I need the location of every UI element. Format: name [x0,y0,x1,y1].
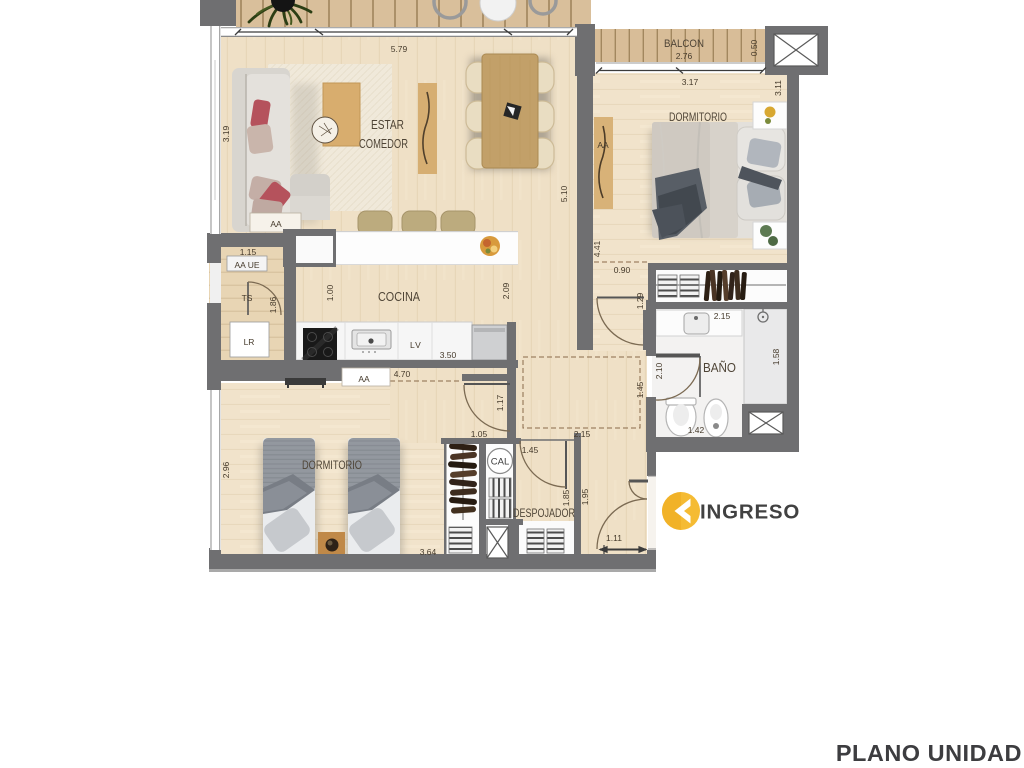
svg-text:1.95: 1.95 [580,488,590,505]
svg-text:1.17: 1.17 [495,394,505,411]
svg-text:1.42: 1.42 [688,425,705,435]
svg-text:1.85: 1.85 [561,489,571,506]
svg-text:5.79: 5.79 [391,44,408,54]
svg-text:2.10: 2.10 [654,362,664,379]
svg-text:1.00: 1.00 [325,284,335,301]
svg-text:2.15: 2.15 [574,429,591,439]
svg-text:AA: AA [358,374,370,384]
svg-text:3.50: 3.50 [440,350,457,360]
svg-text:3.11: 3.11 [773,80,783,96]
svg-text:BALCON: BALCON [664,38,704,50]
svg-text:BAÑO: BAÑO [703,361,736,375]
svg-text:1.11: 1.11 [606,533,622,543]
svg-text:AA: AA [270,219,282,229]
svg-text:1.15: 1.15 [240,247,257,257]
svg-text:DORMITORIO: DORMITORIO [302,458,362,472]
svg-text:PLANO UNIDAD: PLANO UNIDAD [836,740,1022,766]
svg-text:4.70: 4.70 [394,369,411,379]
svg-text:2.15: 2.15 [714,311,731,321]
svg-text:5.10: 5.10 [559,185,569,202]
svg-text:LR: LR [244,337,255,347]
svg-text:2.76: 2.76 [676,51,693,61]
svg-text:1.86: 1.86 [268,296,278,313]
svg-text:3.19: 3.19 [221,125,231,142]
svg-text:TS: TS [242,293,253,303]
svg-text:0.90: 0.90 [614,265,631,275]
svg-text:3.17: 3.17 [682,77,699,87]
svg-text:COMEDOR: COMEDOR [359,137,408,151]
svg-text:0.50: 0.50 [749,39,759,56]
svg-text:DORMITORIO: DORMITORIO [669,110,727,124]
svg-text:COCINA: COCINA [378,290,421,304]
svg-text:1.58: 1.58 [771,348,781,365]
svg-text:1.45: 1.45 [635,381,645,398]
svg-text:AA UE: AA UE [234,260,259,270]
svg-text:1.45: 1.45 [522,445,539,455]
svg-text:3.64: 3.64 [420,547,437,557]
svg-text:CAL: CAL [491,457,509,468]
svg-text:AA: AA [597,140,609,150]
svg-text:1.05: 1.05 [471,429,488,439]
svg-text:LV: LV [410,340,422,350]
svg-text:2.96: 2.96 [221,461,231,478]
svg-text:INGRESO: INGRESO [700,501,800,524]
svg-text:DESPOJADOR: DESPOJADOR [513,508,575,520]
svg-text:ESTAR: ESTAR [371,118,404,132]
svg-text:4.41: 4.41 [592,240,602,257]
svg-text:1.29: 1.29 [635,292,645,309]
svg-text:2.09: 2.09 [501,282,511,299]
